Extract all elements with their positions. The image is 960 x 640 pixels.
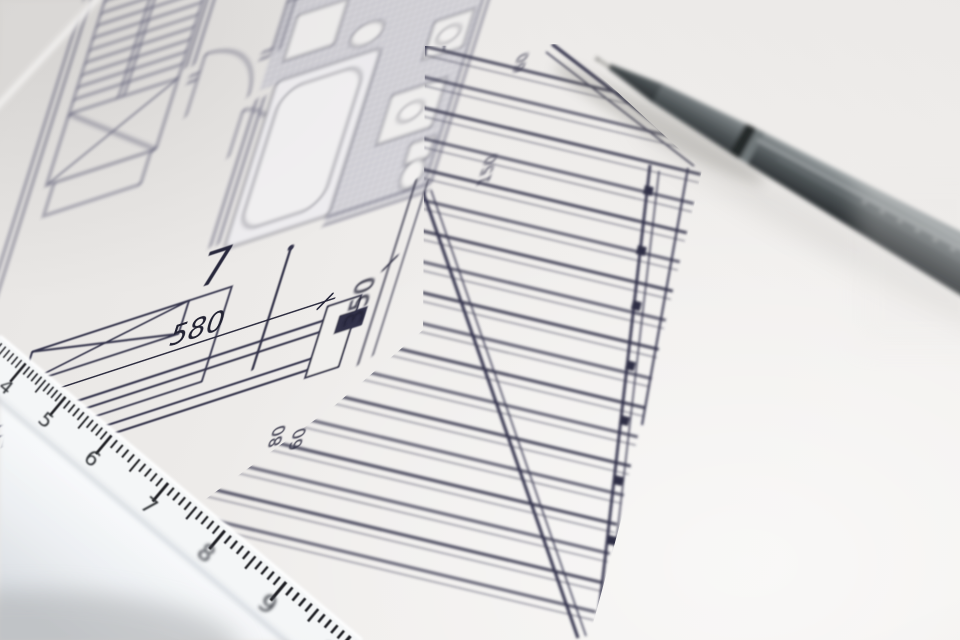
room-number: 7	[190, 234, 239, 301]
bathroom	[205, 0, 513, 264]
leader-line	[249, 244, 294, 371]
dimension-label-580: 580	[165, 303, 230, 354]
architectural-blueprint-photo: 580 7 350 80 60 150 60	[0, 0, 960, 640]
dimension-580: 580	[24, 266, 345, 405]
pencil-defocus-haze	[856, 170, 960, 350]
pencil-lead	[597, 59, 611, 67]
small-dimensions: 80 60	[261, 414, 315, 460]
photo-canvas: 580 7 350 80 60 150 60	[0, 0, 960, 640]
plan-far-elements	[0, 0, 541, 454]
